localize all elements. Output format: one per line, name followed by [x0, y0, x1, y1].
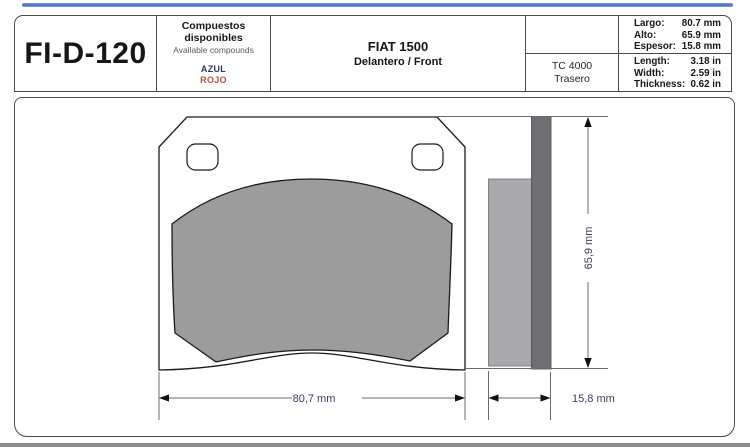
spec-value: 0.62 in	[691, 79, 722, 91]
width-dim-arrow-left	[159, 394, 169, 401]
product-code: FI-D-120	[24, 37, 146, 71]
height-dim-arrow-down	[584, 358, 591, 368]
thickness-dim-arrow-left	[489, 394, 499, 401]
counterpart-info: TC 4000 Trasero	[526, 54, 618, 91]
spec-label: Alto:	[634, 30, 656, 42]
side-view-friction	[489, 179, 532, 366]
page-bottom-edge	[0, 443, 750, 447]
spec-label: Thickness:	[634, 79, 685, 91]
spec-row-thickness: Thickness: 0.62 in	[634, 79, 721, 91]
vehicle-name: FIAT 1500	[368, 39, 428, 54]
mounting-hole-left	[187, 144, 218, 170]
dimensions-metric: Largo: 80.7 mm Alto: 65.9 mm Espesor: 15…	[619, 16, 731, 54]
spec-row-alto: Alto: 65.9 mm	[634, 30, 721, 42]
spec-value: 2.59 in	[691, 68, 722, 80]
compound-rojo: ROJO	[157, 75, 270, 86]
technical-drawing-panel: 65,9 mm 80,7 mm 15,8 mm	[14, 97, 735, 437]
compounds-cell: Compuestos disponibles Available compoun…	[157, 16, 271, 91]
compounds-title: Compuestos disponibles	[157, 20, 270, 44]
width-dim-arrow-right	[455, 394, 465, 401]
friction-material	[172, 179, 452, 362]
spec-label: Espesor:	[634, 41, 676, 53]
brake-pad-drawing: 65,9 mm 80,7 mm 15,8 mm	[14, 97, 735, 437]
datasheet-page: FI-D-120 Compuestos disponibles Availabl…	[0, 0, 750, 448]
spec-value: 80.7 mm	[682, 18, 721, 30]
header-table: FI-D-120 Compuestos disponibles Availabl…	[14, 15, 732, 92]
compound-list: AZUL ROJO	[157, 64, 270, 86]
height-dim-label: 65,9 mm	[583, 227, 595, 270]
application-cell: FIAT 1500 Delantero / Front	[271, 16, 526, 91]
counterpart-cell: TC 4000 Trasero	[526, 16, 619, 91]
spec-row-width: Width: 2.59 in	[634, 68, 721, 80]
spec-value: 3.18 in	[691, 56, 722, 68]
axle-position: Delantero / Front	[354, 56, 442, 68]
spec-label: Width:	[634, 68, 664, 80]
height-dim-arrow-up	[584, 117, 591, 127]
product-code-cell: FI-D-120	[15, 16, 157, 91]
spec-value: 15.8 mm	[682, 41, 721, 53]
side-view-backplate	[532, 117, 552, 370]
spec-row-espesor: Espesor: 15.8 mm	[634, 41, 721, 53]
spec-row-largo: Largo: 80.7 mm	[634, 18, 721, 30]
dimensions-cell: Largo: 80.7 mm Alto: 65.9 mm Espesor: 15…	[619, 16, 731, 91]
counterpart-empty-top	[526, 16, 618, 54]
dimensions-imperial: Length: 3.18 in Width: 2.59 in Thickness…	[619, 54, 731, 91]
spec-label: Length:	[634, 56, 670, 68]
compound-azul: AZUL	[157, 64, 270, 75]
thickness-dim-label: 15,8 mm	[572, 393, 615, 405]
compounds-subtitle: Available compounds	[157, 45, 270, 55]
counterpart-code: TC 4000	[552, 60, 592, 73]
top-accent-line	[22, 3, 733, 7]
counterpart-position: Trasero	[554, 73, 590, 86]
spec-value: 65.9 mm	[682, 30, 721, 42]
thickness-dim-arrow-right	[541, 394, 551, 401]
width-dim-label: 80,7 mm	[293, 393, 336, 405]
mounting-hole-right	[412, 144, 443, 170]
spec-row-length: Length: 3.18 in	[634, 56, 721, 68]
spec-label: Largo:	[634, 18, 664, 30]
